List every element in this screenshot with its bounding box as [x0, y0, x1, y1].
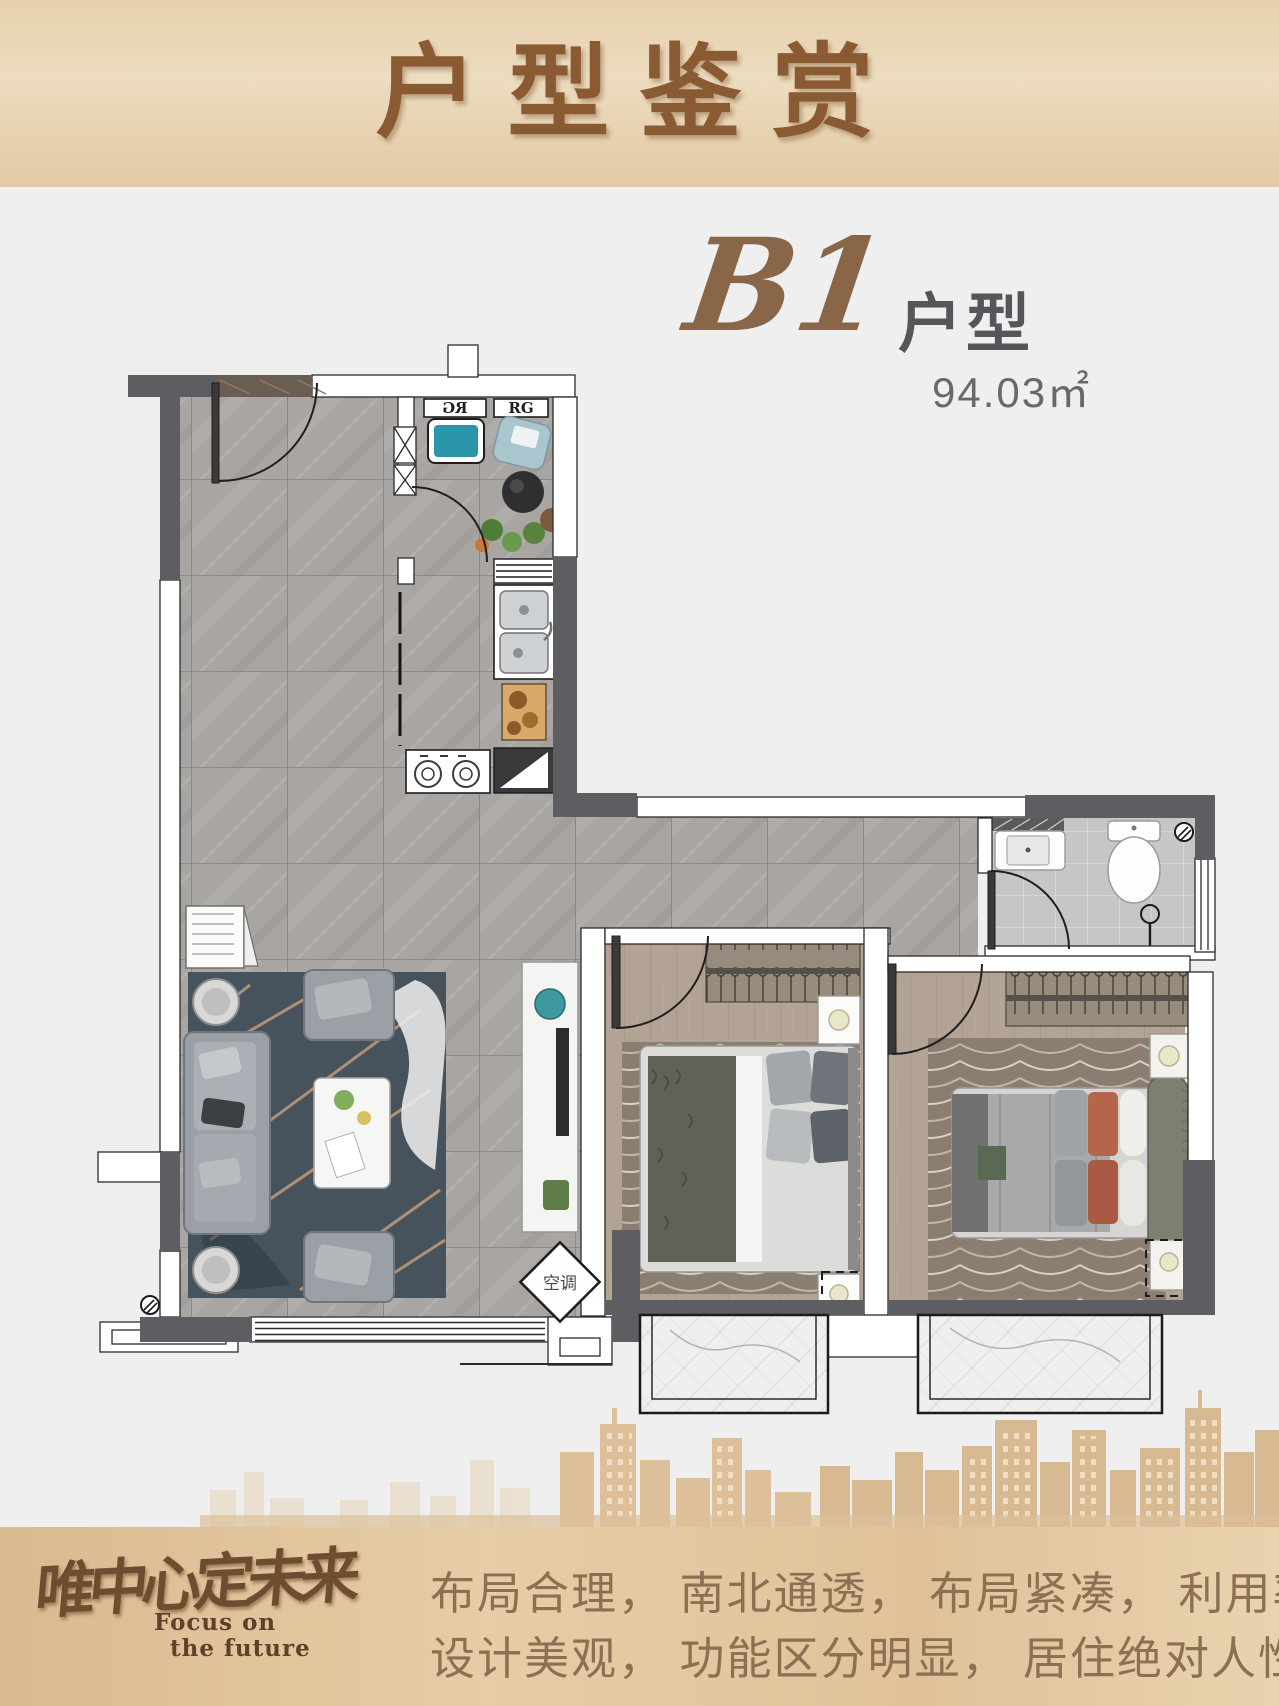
kitchen-sink — [494, 585, 554, 679]
cutting-board — [502, 684, 546, 740]
cabinet-unit: RG — [491, 399, 553, 472]
balcony-bay-window-2 — [918, 1315, 1162, 1413]
sofa — [184, 1032, 270, 1234]
fridge-unit: RG — [424, 399, 486, 463]
floor-drain — [1175, 823, 1193, 841]
balcony-bay-window-1 — [640, 1315, 828, 1413]
slogan-line2: 设计美观， 功能区分明显， 居住绝对人性化 — [430, 1626, 1279, 1691]
gas-stove — [406, 750, 490, 793]
corner-cabinet — [494, 748, 554, 793]
floor-plan-canvas: RG RG — [0, 0, 1279, 1706]
washer-drum — [434, 425, 478, 457]
slogan-line1: 布局合理， 南北通透， 布局紧凑， 利用率高 — [430, 1561, 1279, 1626]
ac-label: 空调 — [543, 1274, 577, 1293]
unit-area: 94.03㎡ — [932, 372, 1091, 414]
fridge-label-mirrored: RG — [442, 399, 467, 417]
logo-english-line2: the future — [170, 1636, 376, 1662]
page-title: 户型鉴赏 — [0, 0, 1279, 187]
vanity-counter — [992, 818, 1065, 870]
coffee-table — [314, 1078, 390, 1188]
nightstand-top — [818, 996, 860, 1044]
counter-hatch — [494, 559, 554, 583]
unit-type-label: 户型 — [898, 292, 1034, 356]
side-table-2-tray — [202, 1256, 230, 1284]
unit-code: B1 — [679, 222, 894, 350]
armchair-bottom — [304, 1232, 394, 1302]
footer-banner: 唯中心定未来 Focus on the future 布局合理， 南北通透， 布… — [0, 1527, 1279, 1706]
tv-console — [522, 962, 578, 1232]
round-table — [502, 471, 544, 513]
nightstand-master-top — [1150, 1034, 1188, 1078]
header-banner: 户型鉴赏 — [0, 0, 1279, 187]
floor-drain-living — [141, 1296, 159, 1314]
cabinet-label: RG — [508, 399, 533, 417]
decor-bowl — [535, 989, 565, 1019]
logo-calligraphy: 唯中心定未来 — [32, 1526, 357, 1630]
poster-page: RG RG — [0, 0, 1279, 1706]
side-table-tray — [202, 988, 230, 1016]
slogan-text: 布局合理， 南北通透， 布局紧凑， 利用率高 设计美观， 功能区分明显， 居住绝… — [430, 1561, 1279, 1691]
toilet — [1108, 821, 1160, 903]
tv-icon — [556, 1028, 569, 1136]
brand-logo: 唯中心定未来 Focus on the future — [36, 1535, 376, 1662]
plant-icon — [543, 1180, 569, 1210]
bed-1 — [640, 1046, 858, 1272]
armchair-top — [304, 970, 394, 1040]
entry-threshold — [215, 375, 312, 397]
nightstand-master-bottom — [1150, 1240, 1188, 1290]
bench-art — [978, 1146, 1006, 1180]
